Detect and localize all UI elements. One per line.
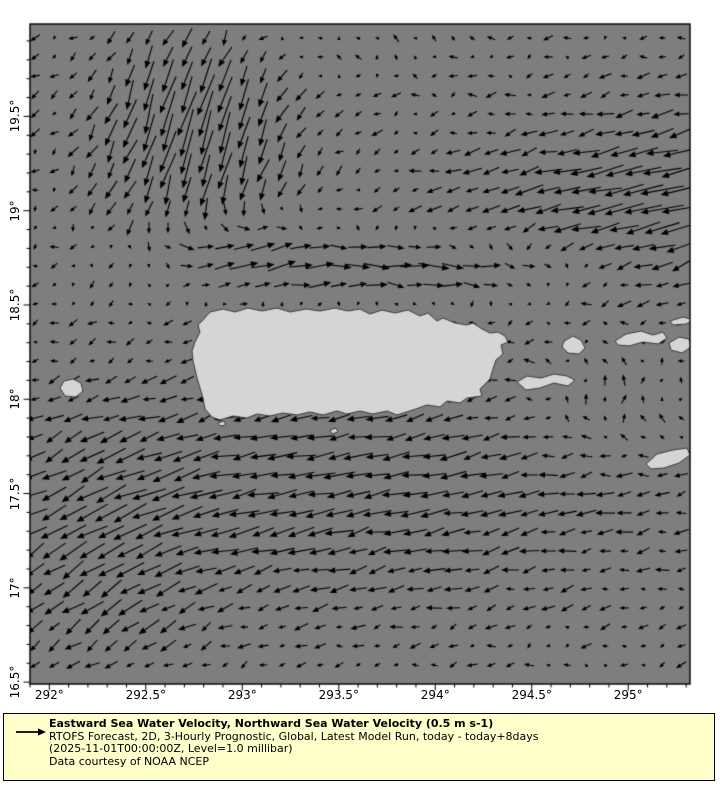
x-tick-label: 292.5° xyxy=(126,688,166,702)
velocity-vector-map-canvas xyxy=(18,12,702,692)
legend-box: Eastward Sea Water Velocity, Northward S… xyxy=(3,713,715,781)
x-tick-label: 294° xyxy=(421,688,450,702)
legend-run-info: (2025-11-01T00:00:00Z, Level=1.0 milliba… xyxy=(49,743,539,756)
x-tick-label: 292° xyxy=(35,688,64,702)
x-tick-label: 293° xyxy=(228,688,257,702)
legend-title: Eastward Sea Water Velocity, Northward S… xyxy=(49,718,539,731)
x-tick-label: 294.5° xyxy=(512,688,552,702)
y-tick-label: 19.5° xyxy=(8,100,22,133)
legend-credit: Data courtesy of NOAA NCEP xyxy=(49,756,539,769)
y-tick-label: 18° xyxy=(8,389,22,410)
y-tick-label: 18.5° xyxy=(8,289,22,322)
y-tick-label: 19° xyxy=(8,200,22,221)
reference-arrow-icon xyxy=(15,726,47,738)
figure: 292°292.5°293°293.5°294°294.5°295° 19.5°… xyxy=(0,0,720,800)
y-tick-label: 17.5° xyxy=(8,477,22,510)
x-tick-label: 295° xyxy=(614,688,643,702)
y-tick-label: 16.5° xyxy=(8,666,22,699)
y-tick-label: 17° xyxy=(8,577,22,598)
x-tick-label: 293.5° xyxy=(319,688,359,702)
legend-text-block: Eastward Sea Water Velocity, Northward S… xyxy=(49,718,539,768)
